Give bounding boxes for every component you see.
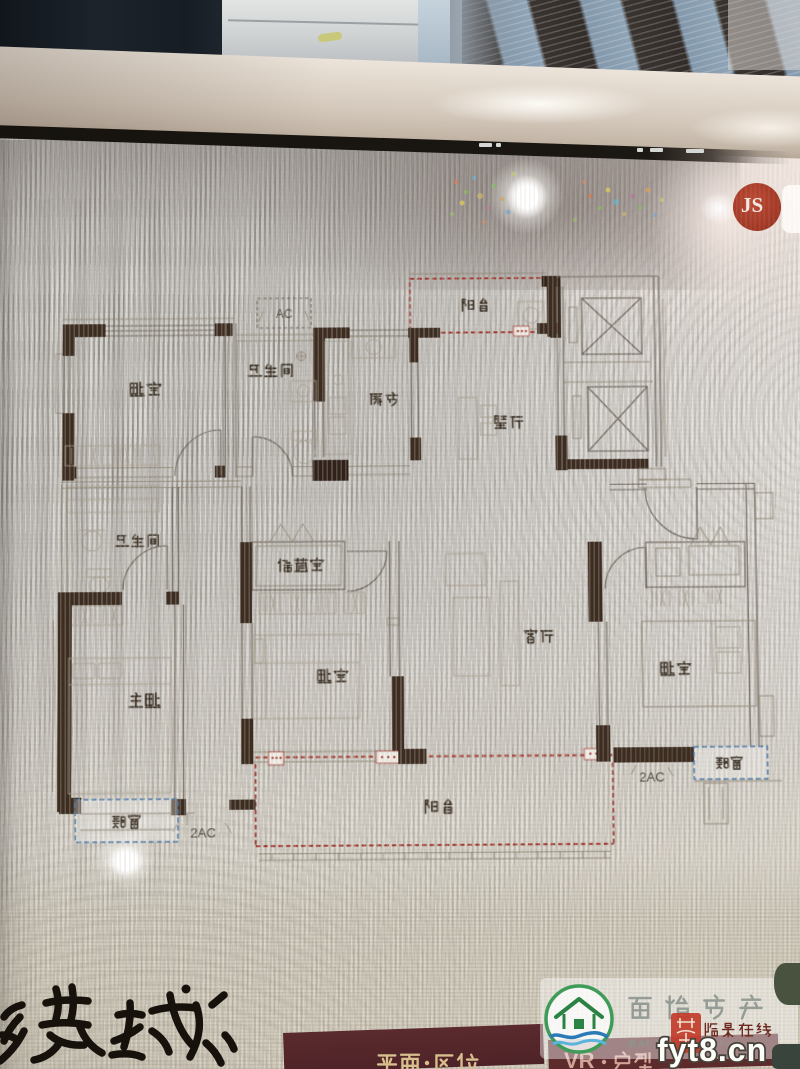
svg-text:fyt8.cn: fyt8.cn [657,1032,767,1068]
